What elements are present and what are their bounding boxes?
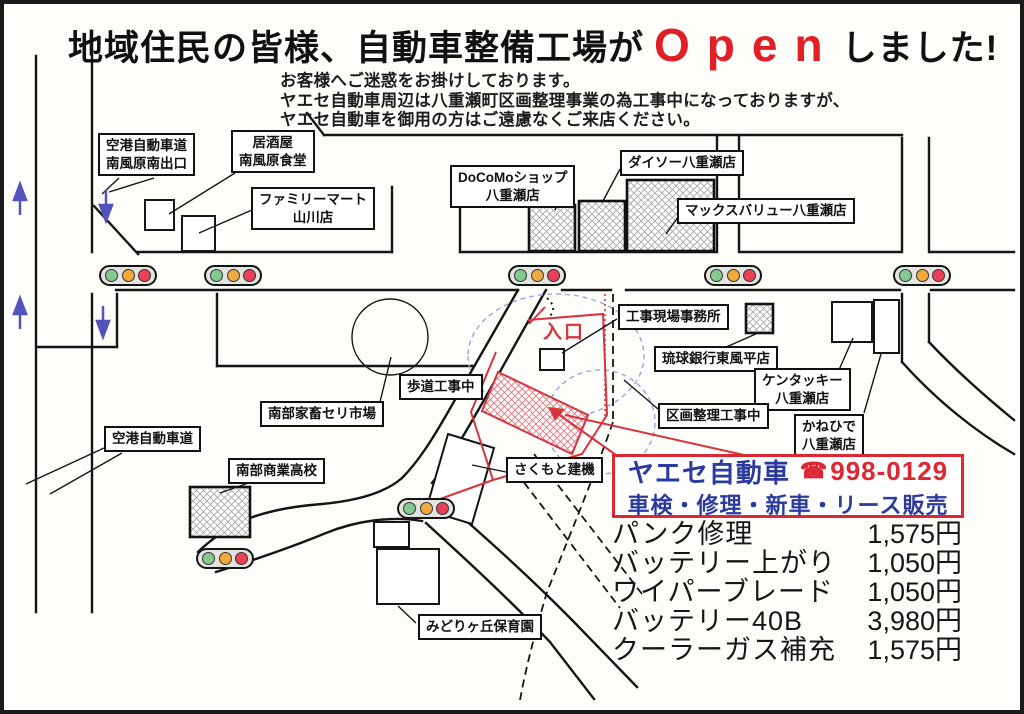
- shop-info-box: ヤエセ自動車 ☎ 998-0129 車検・修理・新車・リース販売: [612, 454, 964, 518]
- map-label-hodou-kouji: 歩道工事中: [399, 374, 483, 400]
- map-label-maxvalu: マックスバリュー八重瀬店: [677, 198, 855, 224]
- telephone-icon: ☎: [800, 458, 828, 484]
- traffic-light-icon: [704, 265, 762, 286]
- yaese-building: [482, 372, 588, 454]
- price-row: パンク修理 1,575円: [612, 520, 962, 549]
- map-label-airport-exit: 空港自動車道 南風原南出口: [98, 133, 195, 176]
- traffic-light-icon: [397, 498, 455, 519]
- traffic-light-icon: [99, 265, 157, 286]
- flyer-page: 地域住民の皆様、自動車整備工場が Open しました! お客様へご迷惑をお掛けし…: [0, 0, 1024, 714]
- direction-arrows: [14, 184, 112, 337]
- map-label-midorigaoka: みどりヶ丘保育園: [418, 614, 542, 640]
- price-list: パンク修理 1,575円 バッテリー上がり 1,050円 ワイパーブレード 1,…: [612, 520, 962, 665]
- map-label-kanehide: かねひで 八重瀬店: [794, 414, 864, 457]
- map-label-nanbu-high-school: 南部商業高校: [228, 458, 325, 484]
- map-label-site-office: 工事現場事務所: [618, 304, 729, 330]
- headline-open-text: Open: [654, 18, 840, 72]
- traffic-light-icon: [196, 548, 254, 569]
- price-item-value: 1,050円: [867, 549, 962, 578]
- price-item-name: バッテリー40B: [612, 607, 803, 636]
- map-label-airport-road: 空港自動車道: [104, 426, 201, 452]
- map-label-entrance: 入口: [537, 319, 591, 348]
- price-item-value: 3,980円: [867, 607, 962, 636]
- map-label-kukaku-kouji: 区画整理工事中: [658, 403, 769, 429]
- map-label-sakumoto: さくもと建機: [506, 457, 603, 483]
- traffic-light-icon: [893, 265, 951, 286]
- notice-line: ヤエセ自動車周辺は八重瀬町区画整理事業の為工事中になっておりますが、: [280, 92, 850, 112]
- price-item-name: パンク修理: [612, 520, 753, 549]
- shop-name: ヤエセ自動車: [628, 453, 790, 490]
- shop-phone-number: 998-0129: [830, 456, 948, 487]
- side-streets-right: [902, 294, 1014, 454]
- notice-line: お客様へご迷惑をお掛けしております。: [280, 72, 850, 92]
- map-label-izakaya: 居酒屋 南風原食堂: [231, 130, 315, 173]
- price-item-value: 1,575円: [867, 520, 962, 549]
- price-row: ワイパーブレード 1,050円: [612, 578, 962, 607]
- notice-text: お客様へご迷惑をお掛けしております。 ヤエセ自動車周辺は八重瀬町区画整理事業の為…: [280, 72, 850, 131]
- price-item-name: ワイパーブレード: [612, 578, 834, 607]
- price-item-name: クーラーガス補充: [612, 636, 836, 665]
- price-row: クーラーガス補充 1,575円: [612, 636, 962, 665]
- map-label-familymart: ファミリーマート 山川店: [251, 187, 375, 230]
- headline: 地域住民の皆様、自動車整備工場が Open しました!: [68, 18, 998, 72]
- traffic-light-icon: [204, 265, 262, 286]
- map-label-cattle-market: 南部家畜セリ市場: [260, 401, 384, 427]
- notice-line: ヤエセ自動車を御用の方はご遠慮なくご来店ください。: [280, 111, 850, 131]
- shop-services: 車検・修理・新車・リース販売: [628, 488, 949, 520]
- price-item-name: バッテリー上がり: [612, 549, 836, 578]
- map-label-docomo: DoCoMoショップ 八重瀬店: [450, 165, 575, 208]
- shop-phone: ☎ 998-0129: [800, 456, 948, 487]
- headline-prefix: 地域住民の皆様、自動車整備工場が: [68, 20, 644, 71]
- price-row: バッテリー40B 3,980円: [612, 607, 962, 636]
- price-item-value: 1,575円: [867, 636, 962, 665]
- headline-suffix: しました!: [842, 20, 999, 71]
- map-label-daiso: ダイソー八重瀬店: [620, 150, 744, 176]
- price-item-value: 1,050円: [867, 578, 962, 607]
- traffic-light-icon: [508, 265, 566, 286]
- price-row: バッテリー上がり 1,050円: [612, 549, 962, 578]
